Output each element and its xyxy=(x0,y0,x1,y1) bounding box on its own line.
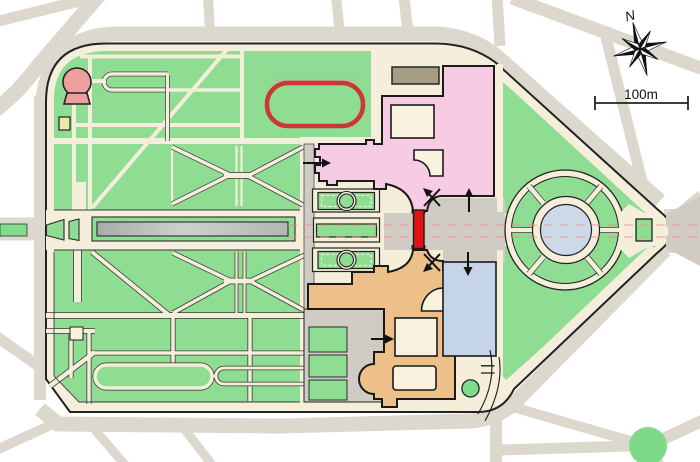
svg-text:100m: 100m xyxy=(624,87,658,102)
